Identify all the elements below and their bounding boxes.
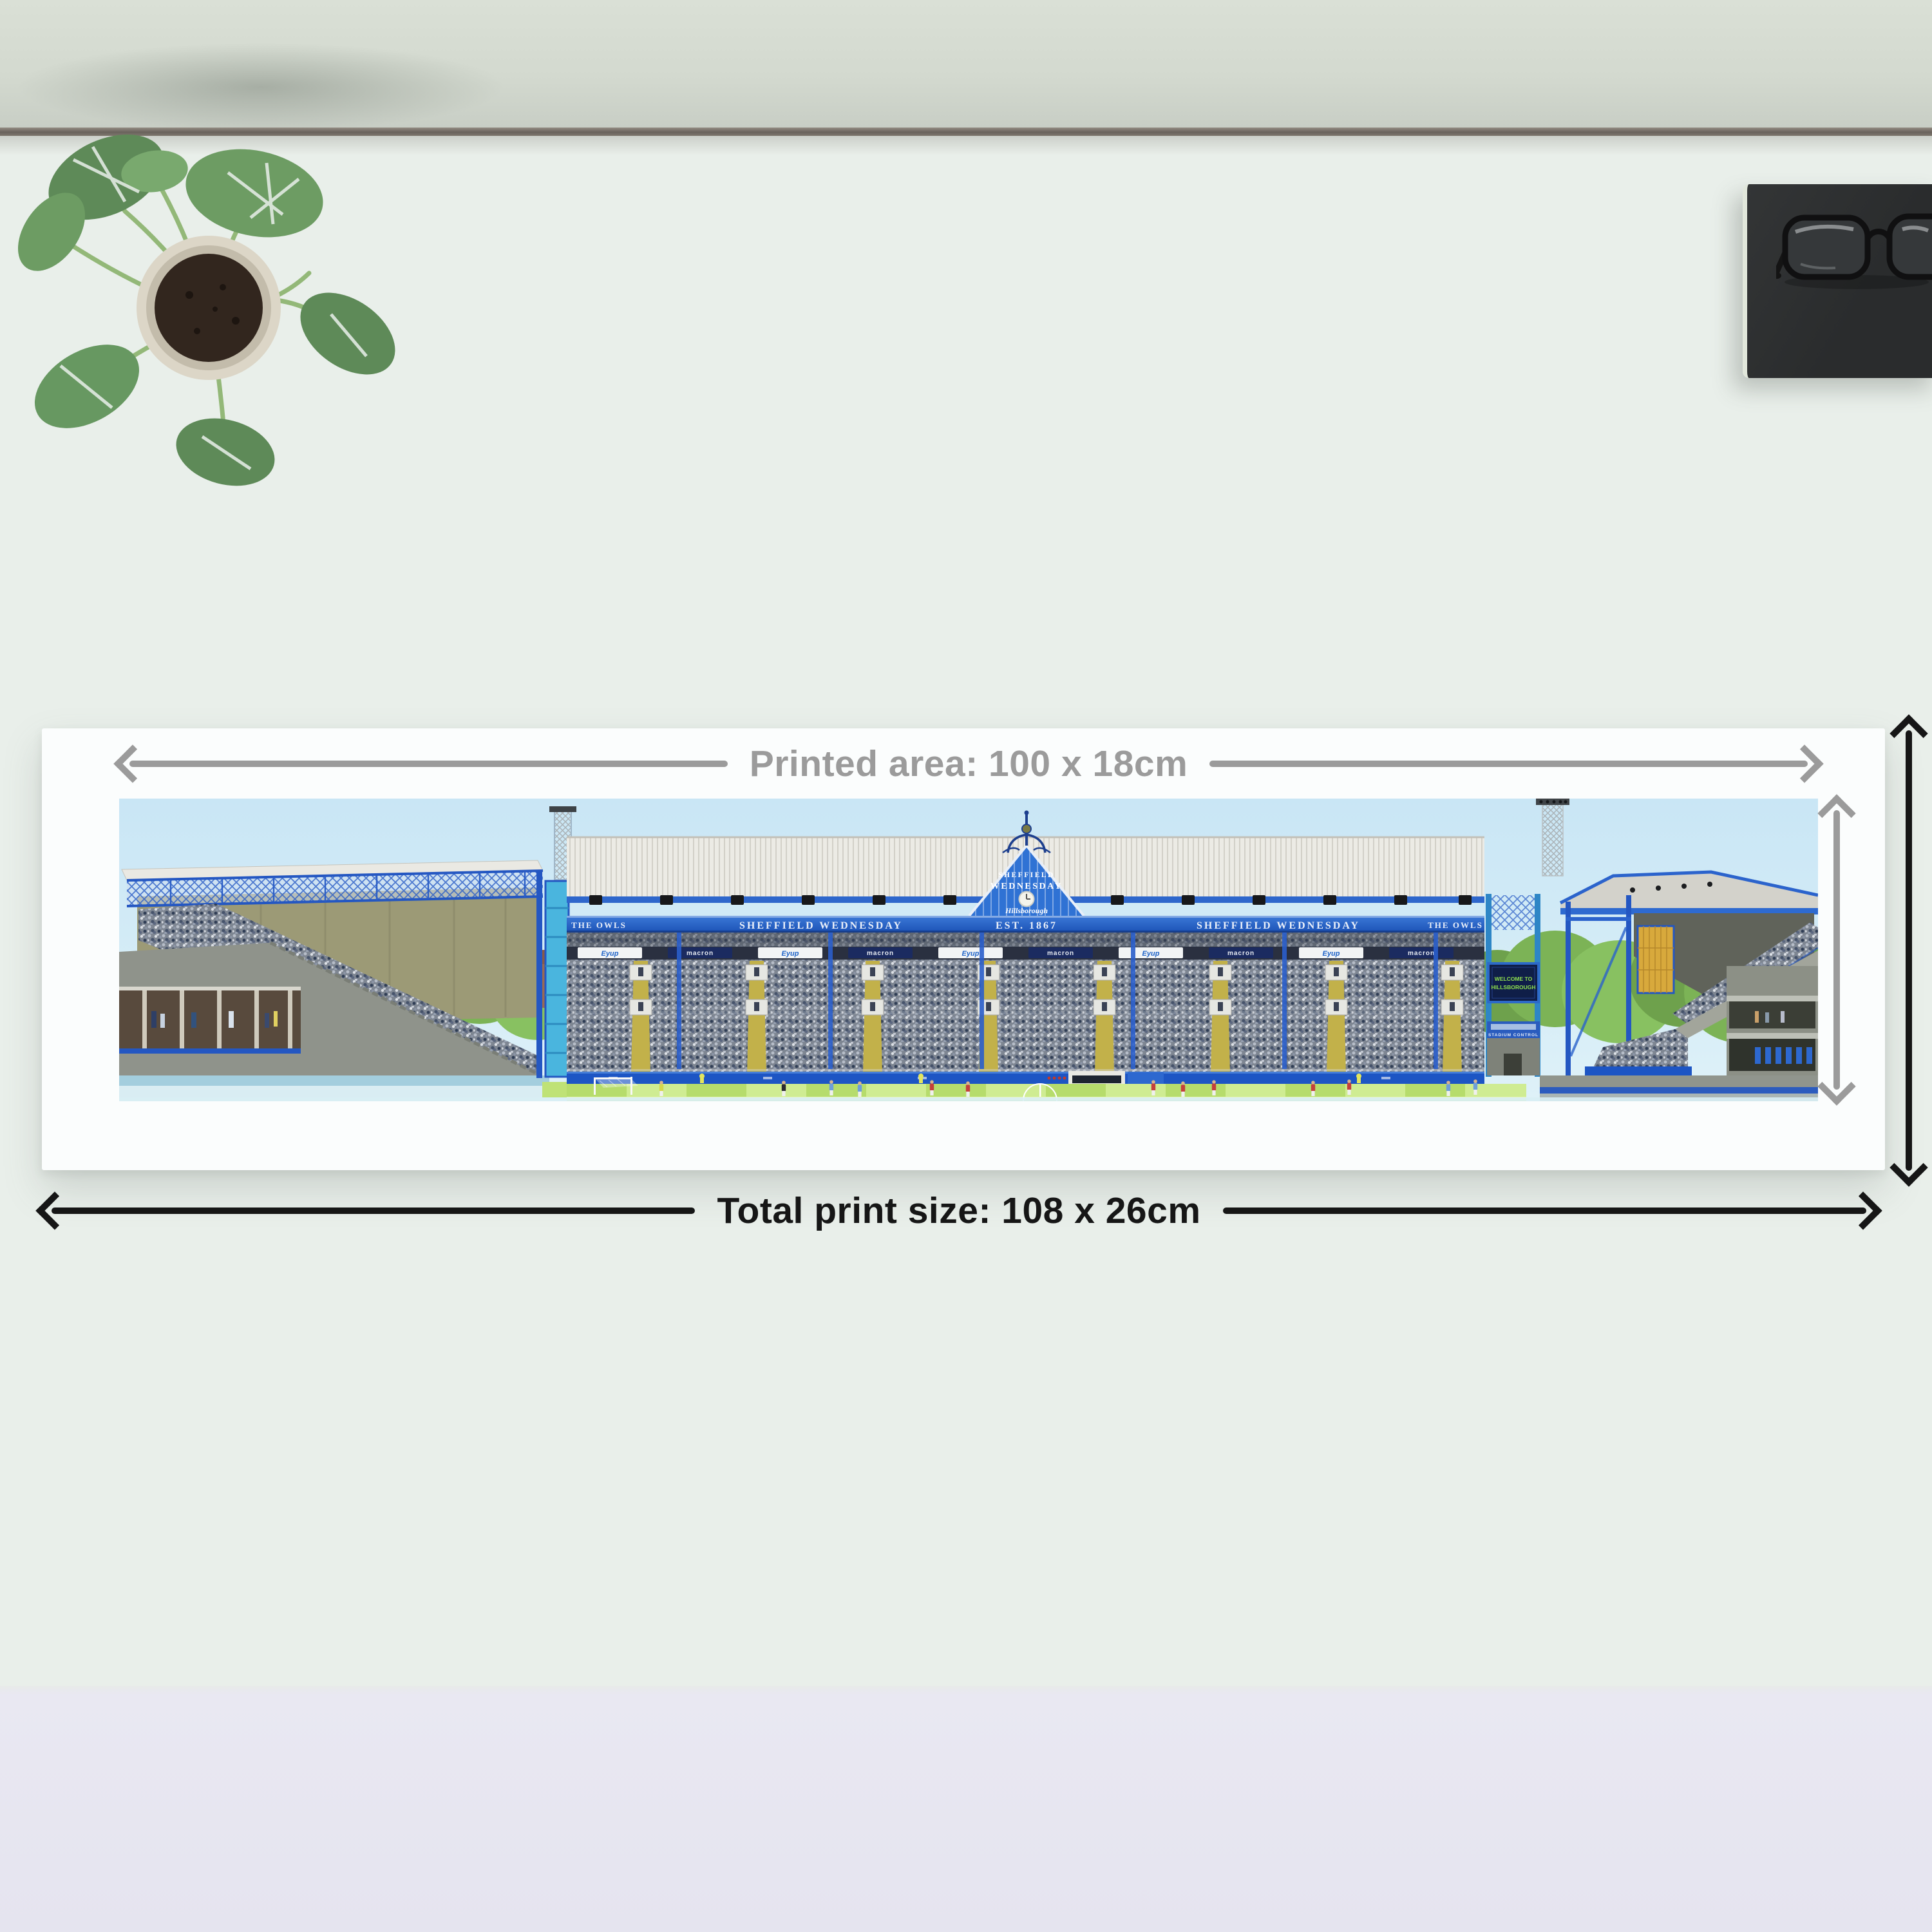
arrow-right-icon [1844,1191,1882,1229]
arrow-right-icon [1785,744,1823,782]
sponsor-board-eyup: Eyup [1142,950,1160,958]
arrow-down-icon [1889,1148,1927,1186]
dimension-line [52,1207,695,1214]
sponsor-board-eyup: Eyup [1323,950,1340,958]
total-height-dimension [1887,720,1931,1181]
arrow-up-icon [1889,714,1927,752]
fascia-club-left: SHEFFIELD WEDNESDAY [739,920,903,931]
sponsor-board-eyup: Eyup [782,950,799,958]
main-stand: SHEFFIELD WEDNESDAY Hillsborough THE OWL… [567,811,1484,1085]
fascia-owls-left: THE OWLS [571,920,627,930]
fascia-owls-right: THE OWLS [1428,920,1483,930]
sponsor-board-macron: macron [687,950,714,957]
dimension-line [1833,810,1840,1090]
dimension-line [129,761,728,767]
turnstile-building [119,987,301,1054]
fascia-band: THE OWLS SHEFFIELD WEDNESDAY EST. 1867 S… [567,916,1484,933]
product-mockup-scene: SHEFFIELD WEDNESDAY Hillsborough THE OWL… [0,0,1932,1932]
printed-height-dimension [1815,800,1859,1100]
arrow-down-icon [1817,1067,1855,1105]
stadium-control-label: STADIUM CONTROL [1488,1033,1539,1037]
gable-text-sheffield: SHEFFIELD [998,871,1055,879]
dimension-line [1906,730,1912,1171]
arrow-left-icon [35,1191,73,1229]
sponsor-board-macron: macron [1227,950,1255,957]
gable-text-hillsborough: Hillsborough [1005,906,1048,915]
total-print-dimension: Total print size: 108 x 26cm [41,1188,1877,1234]
welcome-screen [1488,963,1539,1002]
printed-area-dimension: Printed area: 100 x 18cm [119,742,1818,786]
sponsor-board-macron: macron [867,950,894,957]
screen-line1: WELCOME TO [1495,976,1533,982]
total-print-label: Total print size: 108 x 26cm [717,1189,1200,1232]
dimension-line [1223,1207,1866,1214]
potted-plant-icon [0,134,408,495]
sponsor-board-macron: macron [1408,950,1435,957]
sponsor-board-eyup: Eyup [962,950,980,958]
arrow-up-icon [1817,794,1855,832]
dimension-line [1209,761,1808,767]
floodlight-mast [1542,800,1563,876]
screen-line2: HILLSBOROUGH [1492,984,1536,990]
sponsor-board-macron: macron [1047,950,1074,957]
desk-front-edge [0,1686,1932,1932]
fascia-est: EST. 1867 [996,920,1057,931]
arrow-left-icon [113,744,151,782]
gable-text-wednesday: WEDNESDAY [990,882,1063,891]
fascia-club-right: SHEFFIELD WEDNESDAY [1197,920,1360,931]
corner-tower [542,881,569,1097]
eyeglasses-icon [1776,210,1932,295]
screen-back-panel [1638,926,1674,993]
sponsor-board-eyup: Eyup [601,950,619,958]
printed-area-label: Printed area: 100 x 18cm [750,743,1188,785]
stadium-print-illustration: SHEFFIELD WEDNESDAY Hillsborough THE OWL… [119,799,1818,1101]
